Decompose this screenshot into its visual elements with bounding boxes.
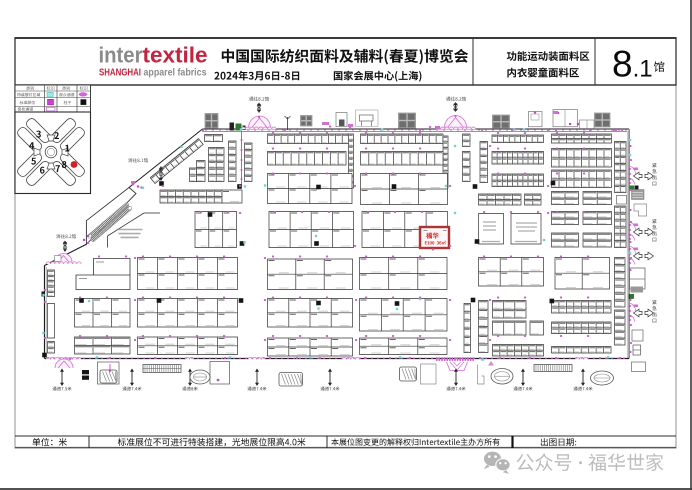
svg-text:inter: inter [99, 43, 143, 68]
svg-text:SHANGHAI: SHANGHAI [99, 67, 141, 79]
svg-text:8.1: 8.1 [612, 44, 653, 85]
svg-text:apparel fabrics: apparel fabrics [144, 67, 207, 79]
svg-text:textile: textile [143, 43, 208, 68]
